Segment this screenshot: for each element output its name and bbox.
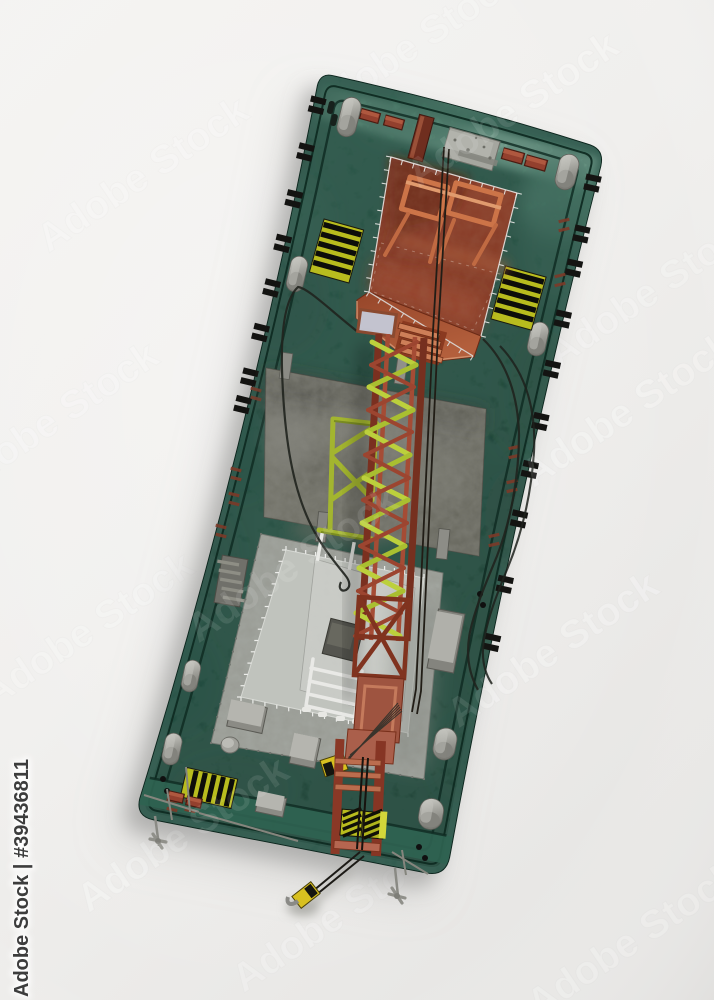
svg-text:Adobe Stock | #39436811: Adobe Stock | #39436811 — [11, 759, 33, 997]
